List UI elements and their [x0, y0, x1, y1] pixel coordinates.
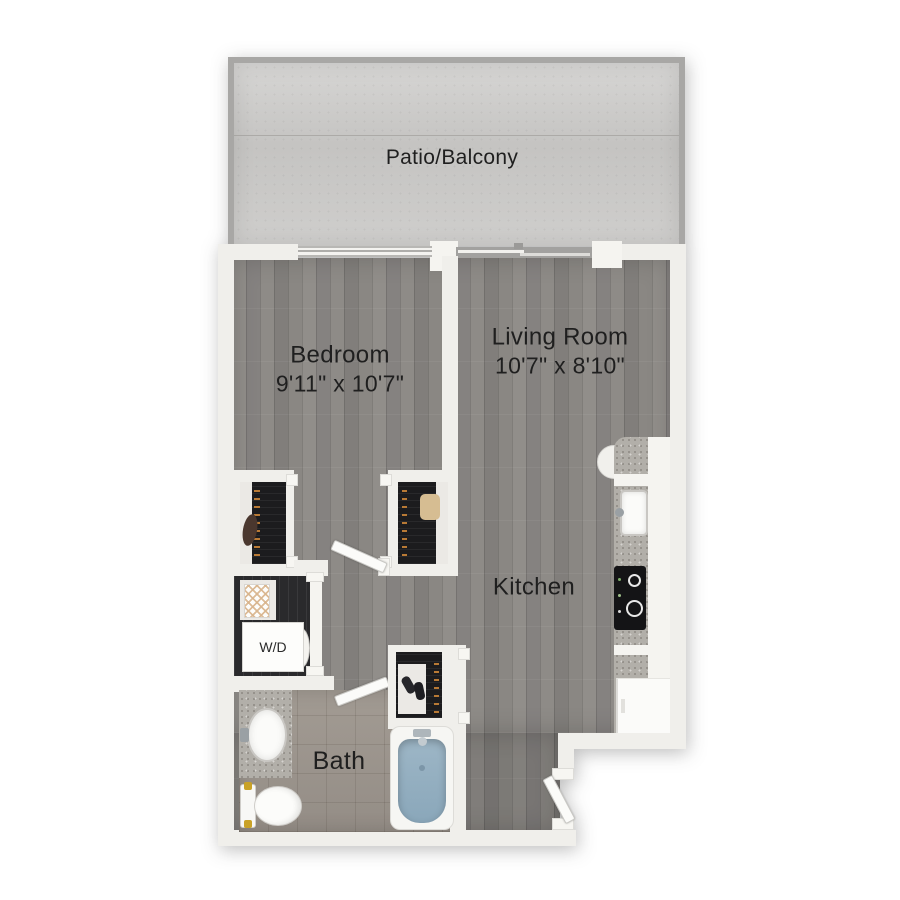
bedroom-dims: 9'11" x 10'7"	[276, 370, 404, 398]
bedroom-label: Bedroom	[276, 340, 404, 369]
coat-closet-jamb	[458, 648, 470, 660]
patio-sliding-door	[456, 247, 592, 258]
bedroom-window	[298, 246, 432, 257]
kitchen-label: Kitchen	[493, 572, 575, 601]
kitchen-sink	[620, 490, 648, 536]
wall-right	[670, 244, 686, 749]
floor-plan: Patio/Balcony W/D	[0, 0, 900, 900]
counter-break	[614, 474, 648, 486]
wall-bedroom-living-divider	[442, 256, 458, 480]
bathtub	[390, 726, 454, 830]
hamper	[244, 584, 270, 618]
closet-door-jamb	[286, 474, 298, 486]
kitchen-faucet	[615, 508, 624, 517]
living-room-label-block: Living Room 10'7" x 8'10"	[492, 322, 629, 379]
toilet-hinge	[244, 782, 252, 790]
burner	[628, 574, 641, 587]
window-pillar-right	[592, 241, 622, 268]
coat-closet-jamb	[458, 712, 470, 724]
closet-door-jamb	[380, 474, 392, 486]
washer-dryer: W/D	[242, 622, 304, 672]
sliding-door-panel	[458, 250, 524, 253]
laundry-door	[310, 576, 322, 676]
sliding-door-panel	[520, 253, 590, 256]
living-room-dims: 10'7" x 8'10"	[492, 352, 629, 380]
burner	[626, 600, 643, 617]
stove-cooktop	[614, 566, 646, 630]
laundry-door-jamb	[306, 572, 324, 582]
stove-light	[618, 610, 621, 613]
wall-bottom	[218, 830, 576, 846]
plan-shadow-wrapper: Patio/Balcony W/D	[0, 0, 900, 900]
closet-hangers	[402, 490, 407, 556]
refrigerator	[616, 678, 670, 733]
patio-label: Patio/Balcony	[386, 145, 518, 171]
entry-door-jamb	[552, 768, 574, 780]
tub-drain	[419, 765, 425, 771]
bedroom-label-block: Bedroom 9'11" x 10'7"	[276, 340, 404, 397]
sliding-door-handle	[514, 243, 523, 249]
stove-light	[618, 578, 621, 581]
wall-notch-horizontal	[558, 733, 686, 749]
stove-light	[618, 594, 621, 597]
living-room-label: Living Room	[492, 322, 629, 351]
toilet-bowl	[254, 786, 302, 826]
closet-basket	[420, 494, 440, 520]
tub-faucet-knob	[418, 737, 427, 746]
toilet-hinge	[244, 820, 252, 828]
washer-dryer-label: W/D	[259, 639, 286, 655]
vanity-sink	[247, 708, 287, 762]
bathtub-basin	[398, 739, 446, 823]
sink-faucet	[240, 728, 249, 742]
patio-concrete-seam	[234, 135, 679, 136]
refrigerator-handle	[621, 699, 625, 713]
tub-faucet	[413, 729, 431, 737]
laundry-door-jamb	[306, 666, 324, 676]
bath-label: Bath	[313, 746, 366, 777]
counter-break	[614, 645, 648, 655]
closet-hangers	[434, 658, 439, 713]
